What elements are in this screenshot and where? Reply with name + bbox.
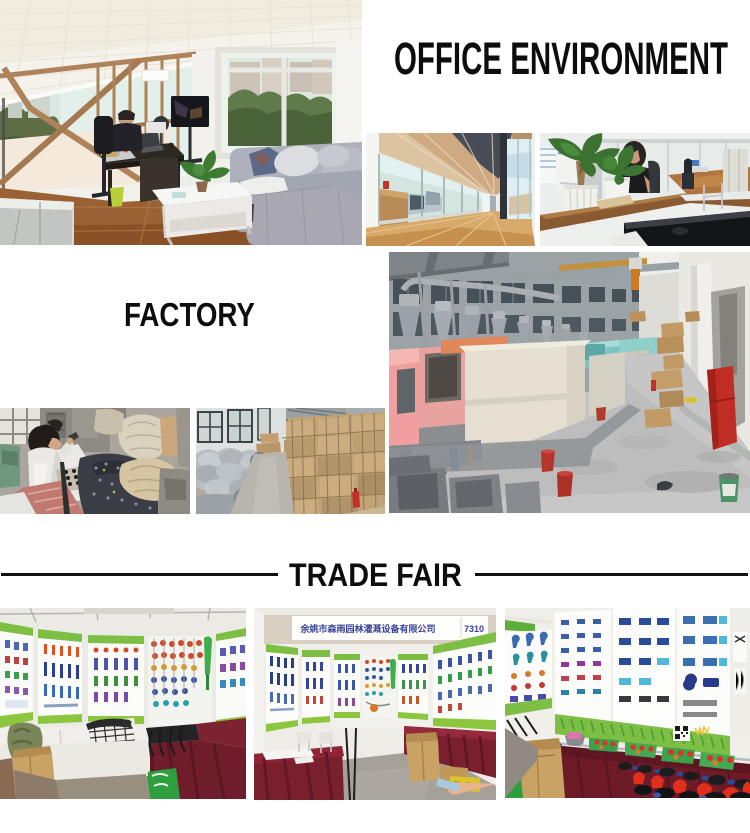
svg-text:7310: 7310: [464, 624, 484, 634]
svg-text:余姚市森雨园林灌溉设备有限公司: 余姚市森雨园林灌溉设备有限公司: [299, 623, 435, 634]
